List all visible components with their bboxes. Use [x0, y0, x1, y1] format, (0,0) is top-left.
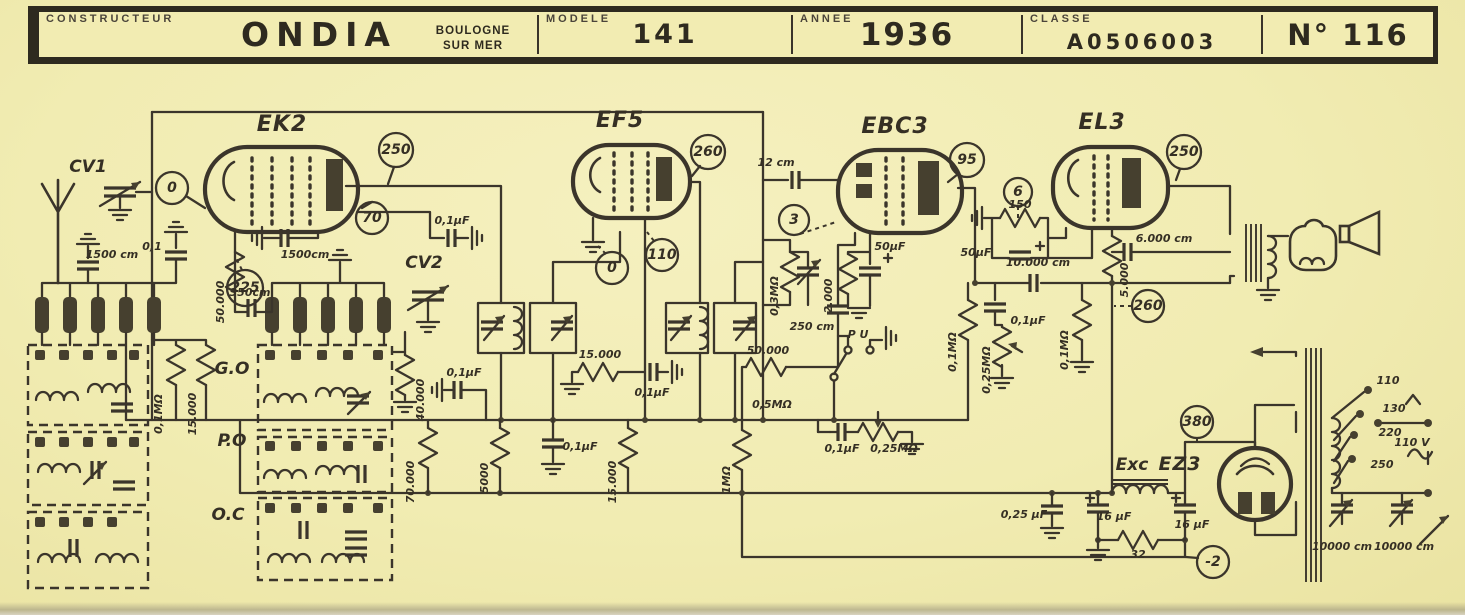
circuit-diagram: CV1 1500 cm 0,1 — [0, 0, 1465, 615]
if-cap-label: 0,1μF — [634, 386, 670, 399]
tp-el3-anode-value: 250 — [1169, 144, 1198, 160]
psu-filter: 0,25 μF 16 μF Exc 16 μF 32 — [1001, 442, 1255, 561]
exc-label: Exc — [1116, 455, 1149, 475]
tube-ek2: EK2 — [205, 112, 358, 232]
tap-110-label: 110 — [1377, 374, 1400, 387]
tube-ebc3-label: EBC3 — [861, 114, 928, 139]
det-r4-label: 0,3MΩ — [768, 276, 781, 316]
schematic-page: CONSTRUCTEUR ONDIA BOULOGNE SUR MER MODE… — [0, 0, 1465, 615]
el3-cath-cap-label: 50μF — [961, 246, 992, 259]
band-go-label: G.O — [215, 359, 250, 379]
el3-screen-r-label: 5.000 — [1118, 262, 1131, 297]
tp-el3-screen-value: 260 — [1133, 298, 1162, 314]
pu-label: P U — [848, 328, 869, 341]
tp-ef5-anode-value: 260 — [693, 144, 722, 160]
bus-r3-label: 15.000 — [606, 460, 619, 503]
vol-pot-label: 0,25MΩ — [980, 346, 993, 393]
af-r-label: 0,1MΩ — [946, 332, 959, 372]
grid-cap-label: 1500cm — [281, 248, 330, 261]
cath-r-label: 2.000 — [822, 278, 835, 313]
psu-cap3-label: 16 μF — [1175, 518, 1210, 531]
tp-ht-value: 380 — [1182, 414, 1211, 430]
aerial-cap-label: 1500 cm — [86, 248, 138, 261]
testpoint-ef5-anode: 260 — [691, 135, 725, 176]
pu-pot-label: 0,25MΩ — [870, 442, 917, 455]
tube-ez3-label: EZ3 — [1159, 453, 1202, 475]
bus-r2-label: 5000 — [478, 462, 491, 493]
coil-box-go — [258, 345, 392, 430]
tube-ez3: EZ3 — [1159, 405, 1294, 535]
aerial-input: CV1 1500 cm 0,1 — [69, 112, 187, 420]
det-r-label: 50.000 — [747, 344, 790, 357]
tone-cap-label: 6.000 cm — [1136, 232, 1193, 245]
osc-cap-label: 350cm — [230, 286, 271, 299]
agc-cap: 0,1μF — [432, 366, 486, 420]
tube-ek2-label: EK2 — [257, 112, 307, 137]
bus-r1-label: 70.000 — [404, 460, 417, 503]
tp-ebc3-anode-value: 95 — [957, 152, 977, 168]
pickup-switch: P U — [831, 327, 897, 420]
bus-droppers: 70.000 5000 15.000 0,1μF — [404, 420, 637, 503]
testpoint-ef5-cathode: 0 — [596, 246, 628, 284]
testpoint-ek2-anode: 250 — [379, 133, 413, 184]
ef5-components: 15.000 0,1μF — [561, 348, 682, 399]
if-r-label: 15.000 — [579, 348, 622, 361]
scan-edge — [0, 602, 1465, 615]
el3-cath-r-label: 150 — [1009, 198, 1032, 211]
bus-cap-label: 0,1μF — [562, 440, 598, 453]
det-r3-label: 1MΩ — [720, 466, 733, 494]
testpoint-ek2-grid: 0 — [156, 172, 205, 208]
tp-ek2-grid-value: 0 — [167, 180, 177, 196]
tube-el3-label: EL3 — [1078, 110, 1125, 135]
cv2-label: CV2 — [405, 253, 442, 273]
agc-cap-label: 0,1μF — [446, 366, 482, 379]
coil-box-oc — [258, 498, 392, 580]
coil-box-left-1 — [28, 345, 148, 425]
tp-bias-value: -2 — [1205, 554, 1221, 570]
switch-r2-label: 15.000 — [186, 392, 199, 435]
band-po-label: P.O — [218, 431, 247, 451]
testpoint-el3-anode: 250 — [1167, 135, 1201, 180]
el3-grid-r-label: 0,1MΩ — [1058, 330, 1071, 370]
tap-130-label: 130 — [1383, 402, 1406, 415]
pu-cap-label: 0,1μF — [824, 442, 860, 455]
coil-box-po — [258, 437, 392, 492]
cath-cap-label: 50μF — [875, 240, 906, 253]
tp-ef5-screen-value: 110 — [647, 247, 676, 263]
output-transformer — [1230, 224, 1465, 300]
testpoint-ek2-screen: 70 — [356, 202, 388, 234]
el3-components: 150 50μF 5.000 0,1MΩ 6.000 cm — [961, 186, 1230, 493]
antenna — [42, 180, 74, 283]
testpoint-bias: -2 — [1186, 546, 1229, 578]
tp-ek2-anode-value: 250 — [381, 142, 410, 158]
psu-r-label: 32 — [1130, 548, 1146, 561]
tp-ef5-cathode-value: 0 — [607, 260, 617, 276]
screen-cap-label: 0,1μF — [434, 214, 470, 227]
grid-leak-label: 50.000 — [214, 280, 227, 323]
mains-caps: 10000 cm 10000 cm — [1312, 493, 1448, 553]
testpoint-rectifier-ht: 380 — [1181, 406, 1213, 442]
af-cap-label: 0,1μF — [1010, 314, 1046, 327]
det-r2-label: 0,5MΩ — [752, 398, 792, 411]
mains-cap2-label: 10000 cm — [1374, 540, 1434, 553]
tap-250-label: 250 — [1371, 458, 1394, 471]
tube-ef5-label: EF5 — [596, 108, 644, 133]
testpoint-ef5-screen: 110 — [646, 232, 678, 271]
testpoint-ebc3-diode: 3 — [779, 205, 836, 235]
coil-box-left-3 — [28, 512, 148, 588]
psu-cap2-label: 16 μF — [1097, 510, 1132, 523]
tube-el3: EL3 — [1053, 110, 1168, 228]
psu-cap1-label: 0,25 μF — [1001, 508, 1048, 521]
r40k-label: 40.000 — [414, 378, 427, 422]
band-oc-label: O.C — [211, 505, 245, 525]
det-cap-label: 250 cm — [790, 320, 835, 333]
cv1-label: CV1 — [69, 157, 106, 177]
loudspeaker — [1290, 212, 1379, 270]
coil-box-left-2 — [28, 432, 148, 505]
tp-ebc3-diode-value: 3 — [789, 212, 799, 228]
tube-ebc3: EBC3 — [838, 114, 962, 233]
outlet-label: 110 V — [1394, 436, 1431, 449]
mains-cap1-label: 10000 cm — [1312, 540, 1372, 553]
diode-cap-label: 12 cm — [757, 156, 794, 169]
switch-r1-label: 0,1MΩ — [152, 394, 165, 434]
